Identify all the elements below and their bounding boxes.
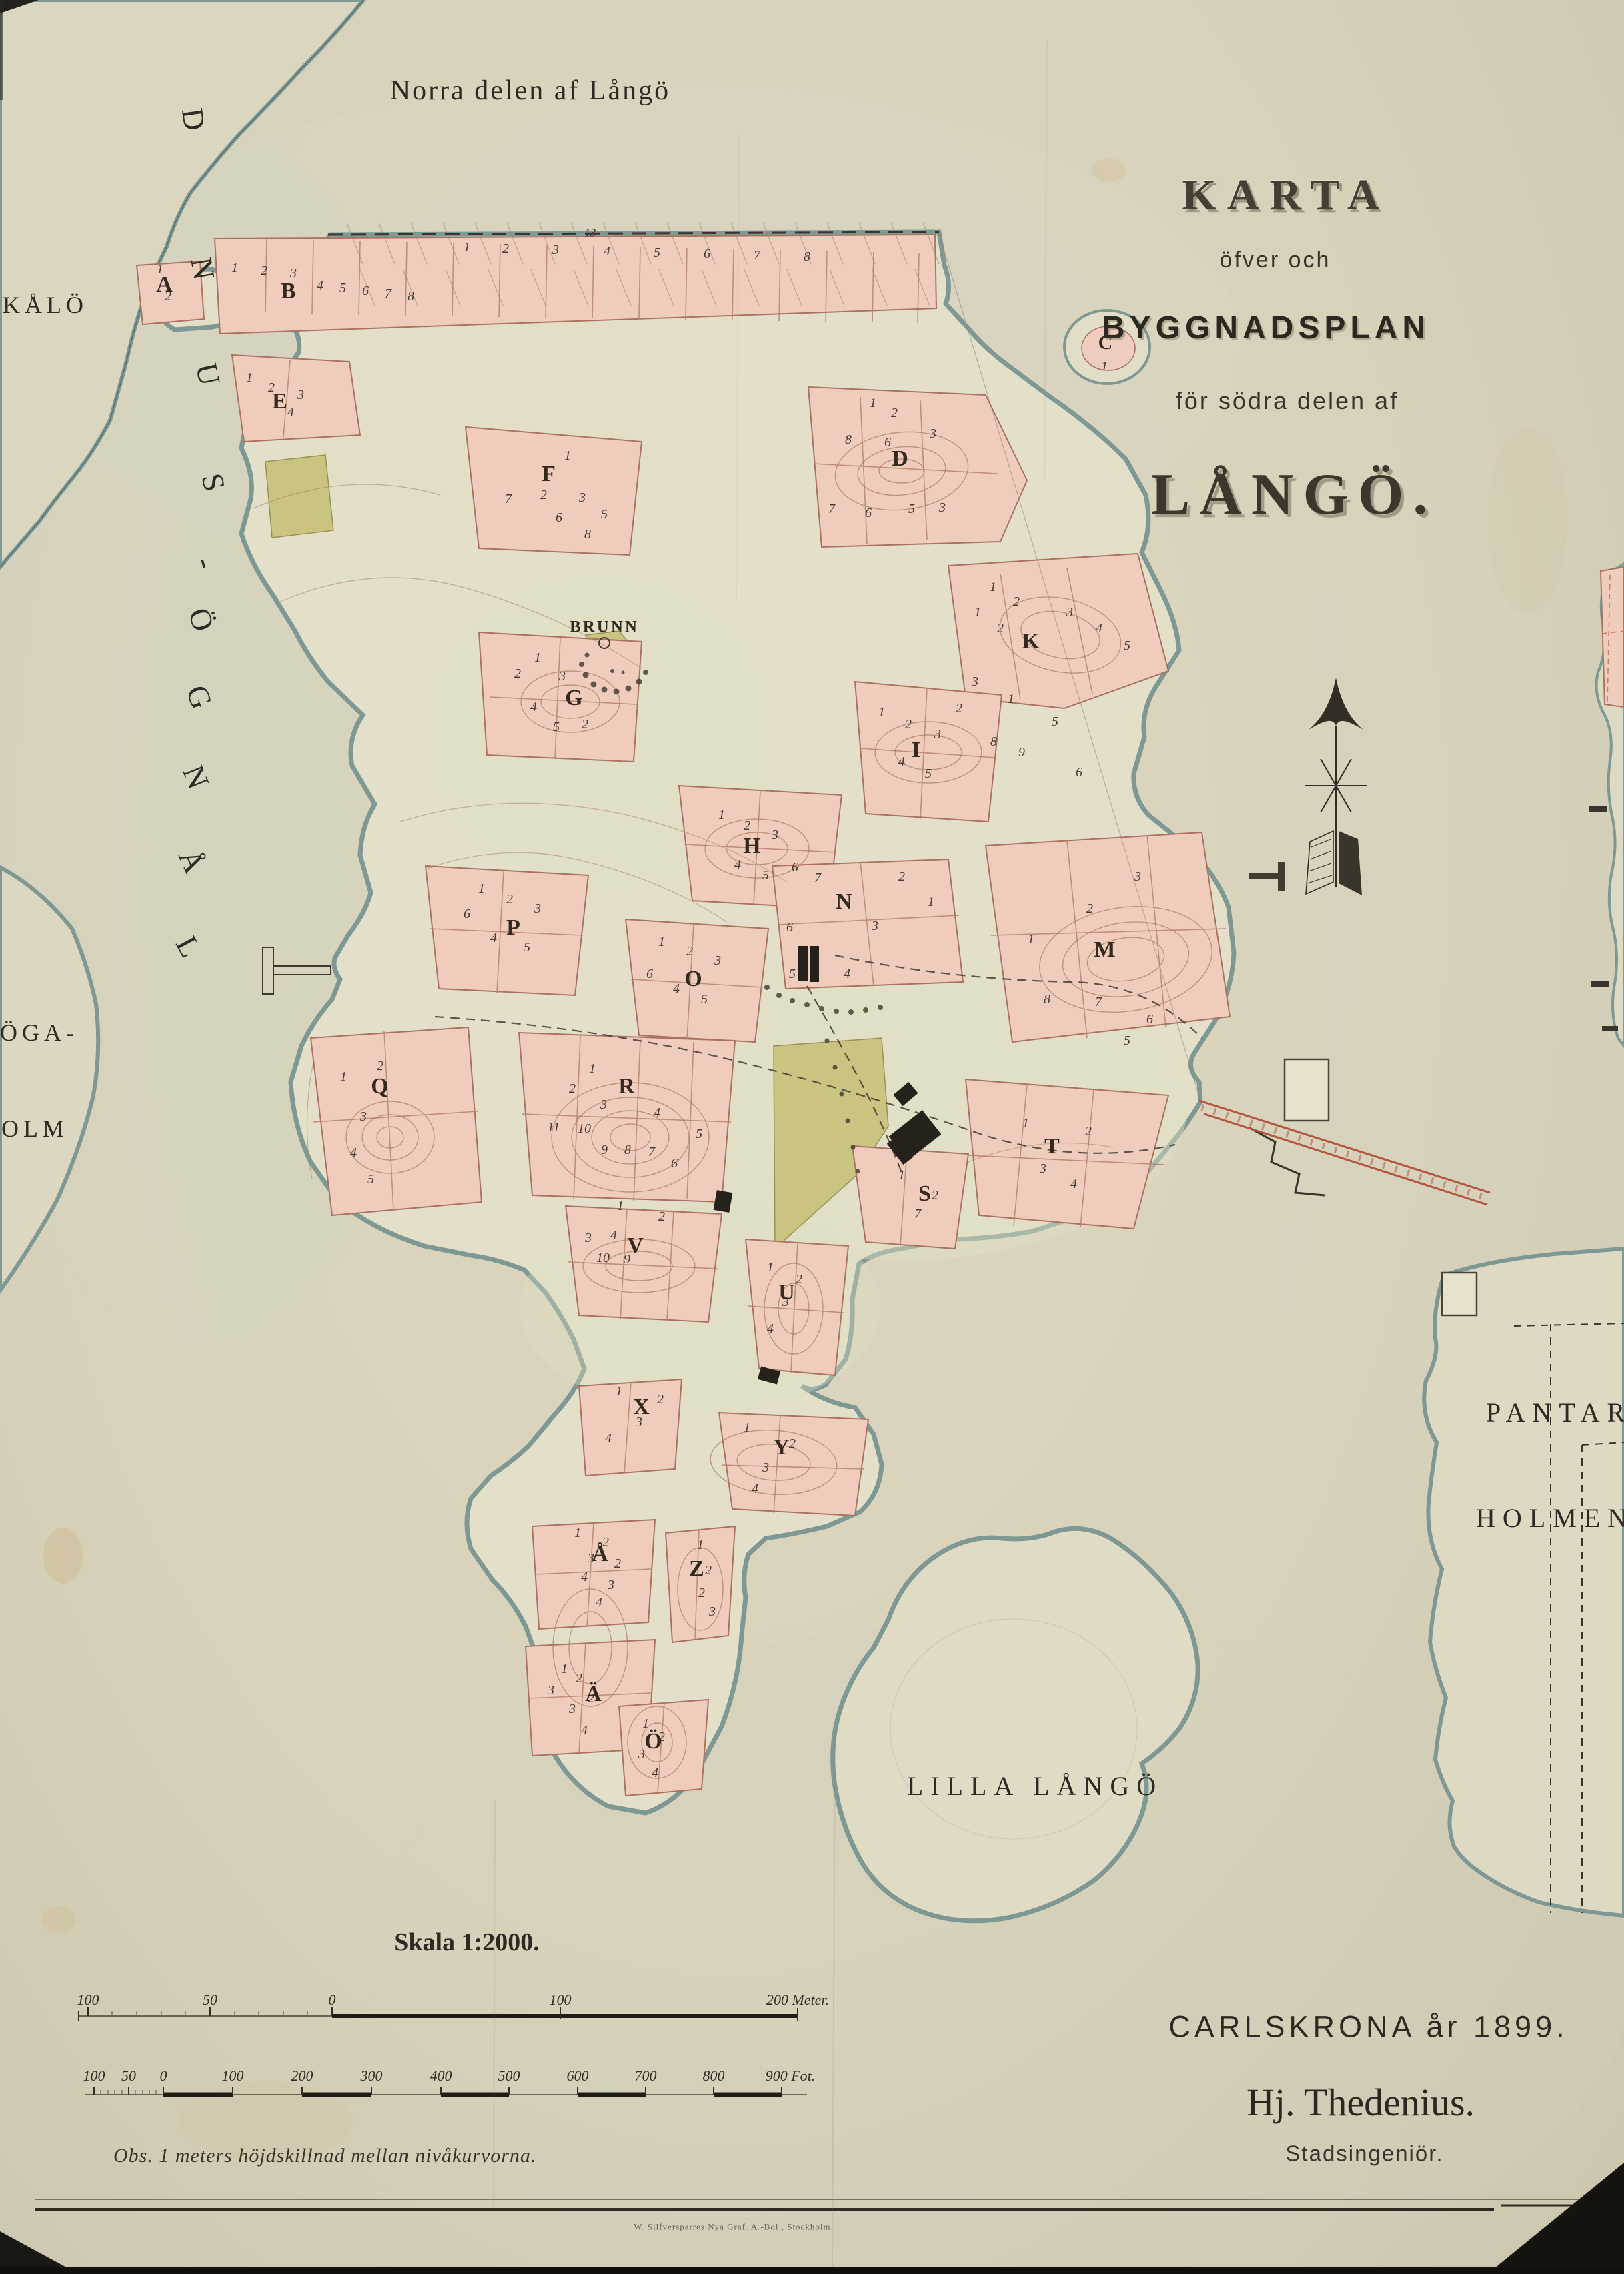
plot-number: 2 bbox=[261, 264, 267, 277]
map-title-line3: BYGGNADSPLAN bbox=[1102, 312, 1430, 344]
plot-number: 2 bbox=[997, 622, 1004, 635]
credit-place-year: CARLSKRONA år 1899. bbox=[1168, 2012, 1568, 2042]
plot-number: 5 bbox=[762, 869, 769, 882]
plot-number: 3 bbox=[552, 243, 559, 257]
plot-number: 3 bbox=[548, 1684, 554, 1697]
hogaholm-label-lower: OLM bbox=[1, 1117, 69, 1141]
plot-number: 1 bbox=[561, 1662, 568, 1676]
plot-number: 2 bbox=[502, 242, 509, 255]
block-letter: Y bbox=[773, 1436, 790, 1459]
plot-number: 4 bbox=[596, 1596, 602, 1609]
plot-number: 2 bbox=[744, 819, 750, 832]
plot-number: 2 bbox=[658, 1730, 665, 1744]
plot-number: 2 bbox=[165, 290, 171, 303]
plot-number: 2 bbox=[796, 1273, 802, 1286]
meter-tick-label: 100 bbox=[550, 1993, 572, 2007]
plot-number: 1 bbox=[658, 935, 665, 949]
meter-tick-label: 200 Meter. bbox=[766, 1993, 829, 2007]
plot-number: 6 bbox=[792, 861, 798, 874]
feet-tick-label: 300 bbox=[361, 2069, 383, 2083]
plot-number: 1 bbox=[974, 606, 981, 619]
plot-number: 5 bbox=[908, 502, 915, 516]
kalo-label: KÅLÖ bbox=[3, 293, 88, 317]
plot-number: 3 bbox=[972, 675, 978, 688]
block-letter: M bbox=[1094, 939, 1116, 961]
meter-tick-label: 50 bbox=[203, 1993, 217, 2007]
block-letter: D bbox=[892, 448, 909, 470]
block-letter: C bbox=[1098, 333, 1114, 353]
plot-number: 6 bbox=[786, 921, 793, 934]
plot-number: 2 bbox=[898, 870, 905, 883]
plot-number: 1 bbox=[767, 1261, 774, 1274]
plot-number: 2 bbox=[514, 667, 521, 680]
plot-number: 1 bbox=[1008, 692, 1014, 706]
block-letter: Q bbox=[371, 1075, 389, 1098]
plot-number: 1 bbox=[1101, 360, 1108, 373]
plot-number: 3 bbox=[290, 267, 297, 280]
plot-number: 3 bbox=[559, 670, 566, 683]
plot-number: 4 bbox=[767, 1322, 774, 1335]
plot-number: 1 bbox=[616, 1385, 622, 1398]
pantarholmen-label-lower: HOLMEN bbox=[1476, 1505, 1624, 1532]
plot-number: 2 bbox=[582, 718, 588, 731]
plot-number: 3 bbox=[600, 1098, 607, 1111]
feet-tick-label: 100 bbox=[222, 2069, 244, 2083]
plot-number: 5 bbox=[696, 1127, 702, 1141]
plot-number: 10 bbox=[596, 1251, 610, 1265]
plot-number: 2 bbox=[588, 1692, 594, 1705]
plot-number: 5 bbox=[1052, 715, 1058, 728]
plot-number: 4 bbox=[898, 755, 905, 768]
plot-number: 10 bbox=[578, 1122, 591, 1135]
contour-note: Obs. 1 meters höjdskillnad mellan nivåku… bbox=[113, 2146, 536, 2166]
plot-number: 1 bbox=[697, 1538, 704, 1552]
north-area-label: Norra delen af Långö bbox=[390, 77, 670, 105]
plot-number: 1 bbox=[642, 1717, 649, 1730]
feet-tick-label: 500 bbox=[498, 2069, 520, 2083]
plot-number: 2 bbox=[686, 945, 693, 958]
plot-number: 2 bbox=[698, 1586, 705, 1600]
plot-number: 2 bbox=[614, 1557, 621, 1570]
plot-number: 4 bbox=[654, 1106, 660, 1119]
credit-author-title: Stadsingeniör. bbox=[1285, 2143, 1443, 2165]
pantarholmen-building-outline bbox=[1442, 1273, 1477, 1315]
plot-number: 3 bbox=[1134, 870, 1141, 883]
plot-number: 2 bbox=[956, 702, 962, 715]
plot-number: 4 bbox=[844, 967, 850, 981]
plot-number: 4 bbox=[1096, 622, 1102, 635]
pantarholmen-shape bbox=[1424, 1249, 1624, 1916]
plot-number: 6 bbox=[884, 436, 891, 449]
plot-number: 1 bbox=[589, 1062, 596, 1075]
feet-tick-label: 700 bbox=[635, 2069, 657, 2083]
plot-number: 1 bbox=[340, 1070, 347, 1083]
plot-number: 2 bbox=[657, 1393, 664, 1406]
plot-number: 2 bbox=[932, 1189, 938, 1202]
lilla-lango-label: LILLA LÅNGÖ bbox=[907, 1773, 1163, 1800]
block-letter: I bbox=[912, 739, 921, 762]
plot-number: 1 bbox=[246, 371, 253, 384]
plot-number: 2 bbox=[268, 381, 275, 394]
plot-number: 3 bbox=[534, 902, 541, 915]
plot-number: 4 bbox=[490, 931, 497, 945]
plot-number: 8 bbox=[624, 1143, 631, 1157]
plot-number: 8 bbox=[408, 290, 414, 303]
plot-number: 2 bbox=[891, 406, 898, 420]
plot-number: 8 bbox=[584, 528, 591, 541]
plot-number: 3 bbox=[588, 1552, 594, 1565]
map-title-line4: för södra delen af bbox=[1176, 389, 1399, 413]
plot-number: 4 bbox=[581, 1570, 588, 1584]
feet-tick-label: 100 bbox=[83, 2069, 105, 2083]
plot-number: 5 bbox=[339, 281, 346, 295]
plot-number: 2 bbox=[658, 1210, 665, 1223]
plot-number: 1 bbox=[898, 1169, 905, 1182]
plot-number: 4 bbox=[604, 245, 610, 258]
map-title-line2: öfver och bbox=[1220, 249, 1331, 271]
plot-number: 1 bbox=[744, 1421, 750, 1434]
credit-author: Hj. Thedenius. bbox=[1247, 2083, 1475, 2122]
plot-number: 2 bbox=[377, 1059, 383, 1073]
plot-number: 5 bbox=[789, 967, 796, 981]
block-letter: Z bbox=[689, 1558, 705, 1580]
feet-tick-label: 0 bbox=[160, 2069, 167, 2083]
feet-tick-label: 200 bbox=[291, 2069, 313, 2083]
plot-number: 3 bbox=[934, 728, 941, 741]
plot-number: 3 bbox=[782, 1295, 789, 1309]
plot-number: 2 bbox=[1085, 1125, 1092, 1138]
plot-number: 1 bbox=[534, 651, 541, 664]
plot-number: 4 bbox=[581, 1724, 588, 1737]
plot-number: 3 bbox=[1040, 1162, 1046, 1175]
plot-number: 4 bbox=[287, 406, 294, 419]
plot-number: 4 bbox=[652, 1766, 658, 1780]
plot-number: 7 bbox=[828, 502, 835, 516]
block-letter: F bbox=[542, 463, 556, 486]
feet-tick-label: 600 bbox=[567, 2069, 589, 2083]
plot-number: 8 bbox=[845, 433, 852, 446]
plot-number: 6 bbox=[362, 284, 369, 298]
plot-number: 1 bbox=[878, 706, 885, 719]
plot-number: 3 bbox=[709, 1605, 716, 1618]
plot-number: 3 bbox=[297, 388, 304, 402]
plot-number: 6 bbox=[1146, 1013, 1153, 1026]
plot-number: 5 bbox=[701, 993, 708, 1006]
block-letter: N bbox=[836, 891, 853, 913]
plot-number: 3 bbox=[360, 1110, 367, 1123]
plot-number: 4 bbox=[605, 1432, 612, 1445]
plot-number: 2 bbox=[602, 1536, 609, 1549]
plot-number: 7 bbox=[914, 1207, 921, 1221]
plot-number: 1 bbox=[928, 895, 934, 909]
east-city-block-fragment bbox=[1601, 567, 1624, 707]
plot-number: 1 bbox=[231, 261, 238, 275]
plot-number: 6 bbox=[1076, 766, 1082, 779]
plot-number: 11 bbox=[548, 1121, 560, 1134]
plot-number: 9 bbox=[1018, 746, 1025, 759]
plot-number: 1 bbox=[870, 396, 876, 410]
hogaholm-label-upper: ÖGA- bbox=[0, 1021, 79, 1045]
block-letter: K bbox=[1022, 630, 1040, 653]
block-letter: B bbox=[281, 280, 297, 303]
brunn-label: BRUNN bbox=[570, 619, 639, 636]
plot-number: 1 bbox=[990, 580, 996, 594]
plot-number: 4 bbox=[610, 1229, 617, 1242]
plot-number: 3 bbox=[762, 1461, 769, 1474]
plot-number: 6 bbox=[865, 506, 872, 520]
feet-tick-label: 400 bbox=[430, 2069, 452, 2083]
block-letter: R bbox=[618, 1075, 636, 1098]
block-letter: P bbox=[506, 917, 521, 939]
plot-number: 6 bbox=[464, 907, 470, 921]
plot-number: 1 bbox=[157, 263, 163, 276]
plot-number: 7 bbox=[1095, 995, 1102, 1009]
plot-number: 3 bbox=[1066, 606, 1073, 619]
plot-number: 1 bbox=[464, 241, 470, 254]
printer-imprint: W. Silfversparres Nya Graf. A.-Bol., Sto… bbox=[634, 2223, 834, 2231]
plot-number: 5 bbox=[1124, 639, 1130, 652]
feet-tick-label: 50 bbox=[121, 2069, 136, 2083]
pantarholmen-label-upper: PANTAR bbox=[1486, 1399, 1624, 1426]
plot-number: 3 bbox=[579, 491, 586, 504]
plot-number: 6 bbox=[556, 511, 562, 524]
plot-number: 1 bbox=[478, 882, 485, 895]
plot-number: 4 bbox=[317, 279, 323, 292]
plot-number: 3 bbox=[608, 1578, 614, 1592]
plot-number: 4 bbox=[752, 1482, 758, 1496]
meter-tick-label: 100 bbox=[77, 1993, 99, 2007]
plot-number: 5 bbox=[601, 508, 608, 521]
plot-number: 7 bbox=[814, 871, 821, 885]
plot-number: 6 bbox=[671, 1157, 678, 1170]
plot-number: 5 bbox=[1124, 1034, 1130, 1047]
plot-number: 4 bbox=[1070, 1177, 1077, 1191]
plot-number: 5 bbox=[367, 1173, 374, 1186]
plot-number: 8 bbox=[1044, 993, 1050, 1006]
plot-number: 2 bbox=[569, 1082, 576, 1095]
block-letter: T bbox=[1044, 1135, 1060, 1158]
plot-number: 4 bbox=[734, 858, 741, 871]
block-letter: H bbox=[743, 835, 761, 858]
scale-label: Skala 1:2000. bbox=[394, 1930, 539, 1955]
boundary-height-marker: 13 bbox=[585, 227, 596, 239]
plot-number: 3 bbox=[636, 1415, 642, 1429]
plot-number: 5 bbox=[553, 720, 560, 734]
plot-number: 8 bbox=[990, 735, 997, 748]
feet-tick-label: 800 bbox=[703, 2069, 725, 2083]
plot-number: 9 bbox=[601, 1143, 608, 1157]
plot-number: 1 bbox=[1028, 933, 1034, 946]
plot-number: 2 bbox=[540, 488, 547, 502]
map-title: KARTA bbox=[1182, 173, 1389, 217]
sound-letter: D bbox=[177, 106, 210, 133]
plot-number: 1 bbox=[718, 808, 725, 822]
plot-number: 4 bbox=[350, 1146, 357, 1159]
block-letter: O bbox=[684, 968, 702, 991]
plot-number: 7 bbox=[385, 287, 391, 300]
block-letter: S bbox=[918, 1183, 932, 1205]
plot-number: 2 bbox=[705, 1564, 712, 1577]
plot-number: 1 bbox=[564, 449, 571, 462]
plot-number: 1 bbox=[617, 1199, 624, 1213]
plot-number: 5 bbox=[654, 246, 660, 259]
plot-number: 2 bbox=[1013, 595, 1020, 608]
plot-number: 2 bbox=[789, 1437, 796, 1450]
plot-number: 3 bbox=[638, 1748, 645, 1761]
plot-number: 8 bbox=[804, 250, 810, 263]
plot-number: 3 bbox=[930, 427, 936, 440]
plot-number: 2 bbox=[905, 718, 912, 731]
plot-number: 3 bbox=[714, 954, 721, 967]
plot-number: 7 bbox=[648, 1145, 655, 1159]
plot-number: 3 bbox=[939, 501, 946, 514]
map-sheet: Norra delen af Långö 13 KARTA öfver och … bbox=[0, 0, 1624, 2274]
plot-number: 1 bbox=[1022, 1117, 1029, 1130]
plot-number: 1 bbox=[574, 1526, 581, 1540]
plot-number: 7 bbox=[754, 249, 760, 262]
plot-number: 6 bbox=[646, 967, 653, 981]
meter-tick-label: 0 bbox=[329, 1993, 336, 2007]
map-title-line5: LÅNGÖ. bbox=[1151, 466, 1437, 524]
plot-number: 4 bbox=[673, 982, 680, 995]
plot-number: 3 bbox=[772, 828, 778, 842]
plot-number: 6 bbox=[704, 247, 710, 261]
plot-number: 4 bbox=[530, 700, 537, 714]
plot-number: 5 bbox=[925, 767, 932, 780]
plot-number: 2 bbox=[1086, 902, 1093, 915]
plot-number: 5 bbox=[524, 941, 530, 954]
plot-number: 2 bbox=[576, 1672, 582, 1685]
plot-number: 7 bbox=[505, 492, 512, 506]
block-letter: G bbox=[565, 687, 583, 710]
plot-number: 2 bbox=[506, 893, 513, 906]
plot-number: 3 bbox=[585, 1231, 592, 1245]
plot-number: 3 bbox=[872, 919, 878, 933]
plot-number: 9 bbox=[624, 1253, 630, 1266]
plot-number: 3 bbox=[569, 1702, 576, 1716]
feet-tick-label: 900 Fot. bbox=[766, 2069, 816, 2083]
